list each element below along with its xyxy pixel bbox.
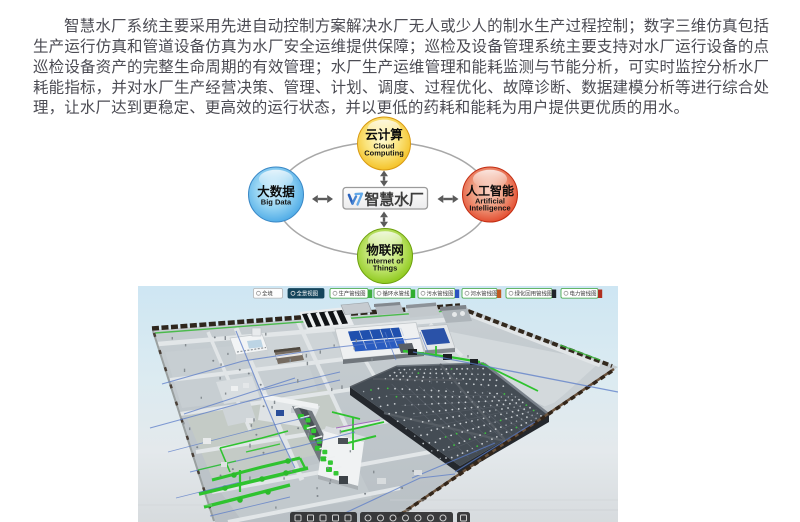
svg-text:全境: 全境	[262, 290, 273, 298]
svg-text:Intelligence: Intelligence	[469, 203, 510, 212]
svg-text:Big Data: Big Data	[261, 198, 292, 207]
svg-text:Things: Things	[373, 263, 398, 272]
svg-text:智慧水厂: 智慧水厂	[365, 191, 424, 209]
svg-text:河水管线图: 河水管线图	[471, 290, 498, 298]
svg-text:污水管线图: 污水管线图	[427, 290, 454, 298]
svg-text:绿化回用管线图: 绿化回用管线图	[515, 290, 553, 298]
svg-text:电力管线图: 电力管线图	[570, 290, 597, 298]
svg-text:云计算: 云计算	[365, 127, 403, 142]
svg-text:生产运行仿真和管道设备仿真为水厂安全运维提供保障；巡检及设备: 生产运行仿真和管道设备仿真为水厂安全运维提供保障；巡检及设备管理系统主要支持对水…	[33, 38, 769, 56]
svg-text:物联网: 物联网	[366, 243, 404, 258]
svg-text:Computing: Computing	[364, 148, 404, 157]
svg-text:生产管线图: 生产管线图	[339, 290, 366, 298]
svg-text:巡检设备资产的完整生命周期的有效管理；水厂生产运维管理和能耗: 巡检设备资产的完整生命周期的有效管理；水厂生产运维管理和能耗监测与节能分析，可实…	[33, 58, 769, 76]
svg-text:循环水管线: 循环水管线	[383, 290, 411, 298]
svg-text:耗能指标，并对水厂生产经营决策、管理、计划、调度、过程优化、: 耗能指标，并对水厂生产经营决策、管理、计划、调度、过程优化、故障诊断、数据建模分…	[33, 78, 769, 96]
svg-text:全景视图: 全景视图	[297, 290, 319, 298]
svg-text:智慧水厂系统主要采用先进自动控制方案解决水厂无人或少人的制水: 智慧水厂系统主要采用先进自动控制方案解决水厂无人或少人的制水生产过程控制；数字三…	[64, 17, 769, 35]
